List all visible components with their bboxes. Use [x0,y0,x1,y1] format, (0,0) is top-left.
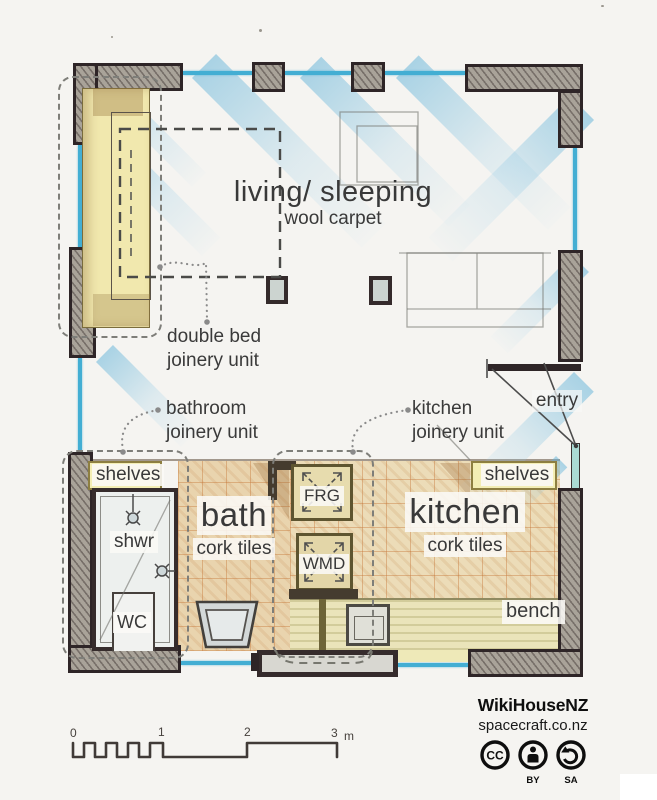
scale-bar: 0 1 2 3 m [70,725,354,757]
wall-top-right-vertical [558,90,583,148]
scan-speck [259,29,262,32]
scale-tick-3: 3 [331,726,338,740]
annotation-double-bed: double bed joinery unit [167,325,261,373]
wall-post-top-1 [252,62,285,92]
window-glazing-top-1 [183,71,252,75]
bath-room-subtitle: cork tiles [170,538,298,560]
floor-plan-canvas: 0 1 2 3 m living/ sleeping wool carpet b… [0,0,657,800]
leader-kitchen [352,410,408,450]
wall-right-lower [558,488,583,656]
website-url: spacecraft.co.nz [477,717,589,734]
credits-block: WikiHouseNZ spacecraft.co.nz CC BY [477,695,589,786]
scan-speck [601,5,604,7]
double-bed-unit-outline [58,76,162,338]
washer-label: WMD [297,554,351,574]
shelves-left-label: shelves [92,464,158,486]
bottom-sill-yellow [398,650,468,662]
shower-label: shwr [107,531,161,553]
brand-name: WikiHouseNZ [477,695,589,716]
bottom-glazing-post [251,653,259,671]
cc-sa-arrow-icon [555,739,587,771]
wall-right-pier [558,250,583,362]
wc-label: WC [113,612,151,633]
kitchen-room-title: kitchen [398,492,532,532]
interior-post-1 [266,276,288,304]
scale-tick-1: 1 [158,725,165,739]
license-icons-row: CC BY SA [477,739,589,786]
cc-sa-label: SA [555,776,587,786]
scale-tick-2: 2 [244,725,251,739]
window-glazing-bottom-1 [181,661,258,665]
annotation-kitchen: kitchen joinery unit [412,397,504,445]
scale-unit: m [344,729,354,743]
window-glazing-left-2 [78,358,82,454]
fridge-label: FRG [299,486,345,506]
entry-sidelight [571,443,580,490]
scan-speck [111,36,113,38]
interior-post-2 [369,276,392,305]
cc-by-item: BY [517,739,549,786]
window-glazing-top-2 [285,71,351,75]
annotation-bathroom: bathroom joinery unit [166,397,258,445]
cc-icon: CC [479,739,511,771]
cc-license-item: CC [479,739,511,786]
bath-room-title: bath [170,496,298,535]
cc-icon-letters: CC [486,749,504,763]
entry-label: entry [529,390,585,412]
shelves-right-label: shelves [480,464,554,486]
cc-sa-item: SA [555,739,587,786]
entry-lintel-beam [488,364,581,371]
cc-by-person-icon [517,739,549,771]
leader-double-bed [160,263,207,320]
window-glazing-bottom-2 [398,663,470,667]
living-room-subtitle: wool carpet [228,208,438,229]
scan-white-patch [620,774,657,800]
living-room-title: living/ sleeping [228,176,438,208]
cc-by-label: BY [517,776,549,786]
bench-label: bench [502,600,562,624]
scale-tick-0: 0 [70,726,77,740]
window-glazing-top-3 [385,71,465,75]
wall-post-top-2 [351,62,385,92]
kitchen-room-subtitle: cork tiles [398,535,532,557]
wall-bottom-right [468,649,583,677]
window-glazing-right-1 [573,148,577,251]
wall-top-right-horizontal [465,64,583,92]
